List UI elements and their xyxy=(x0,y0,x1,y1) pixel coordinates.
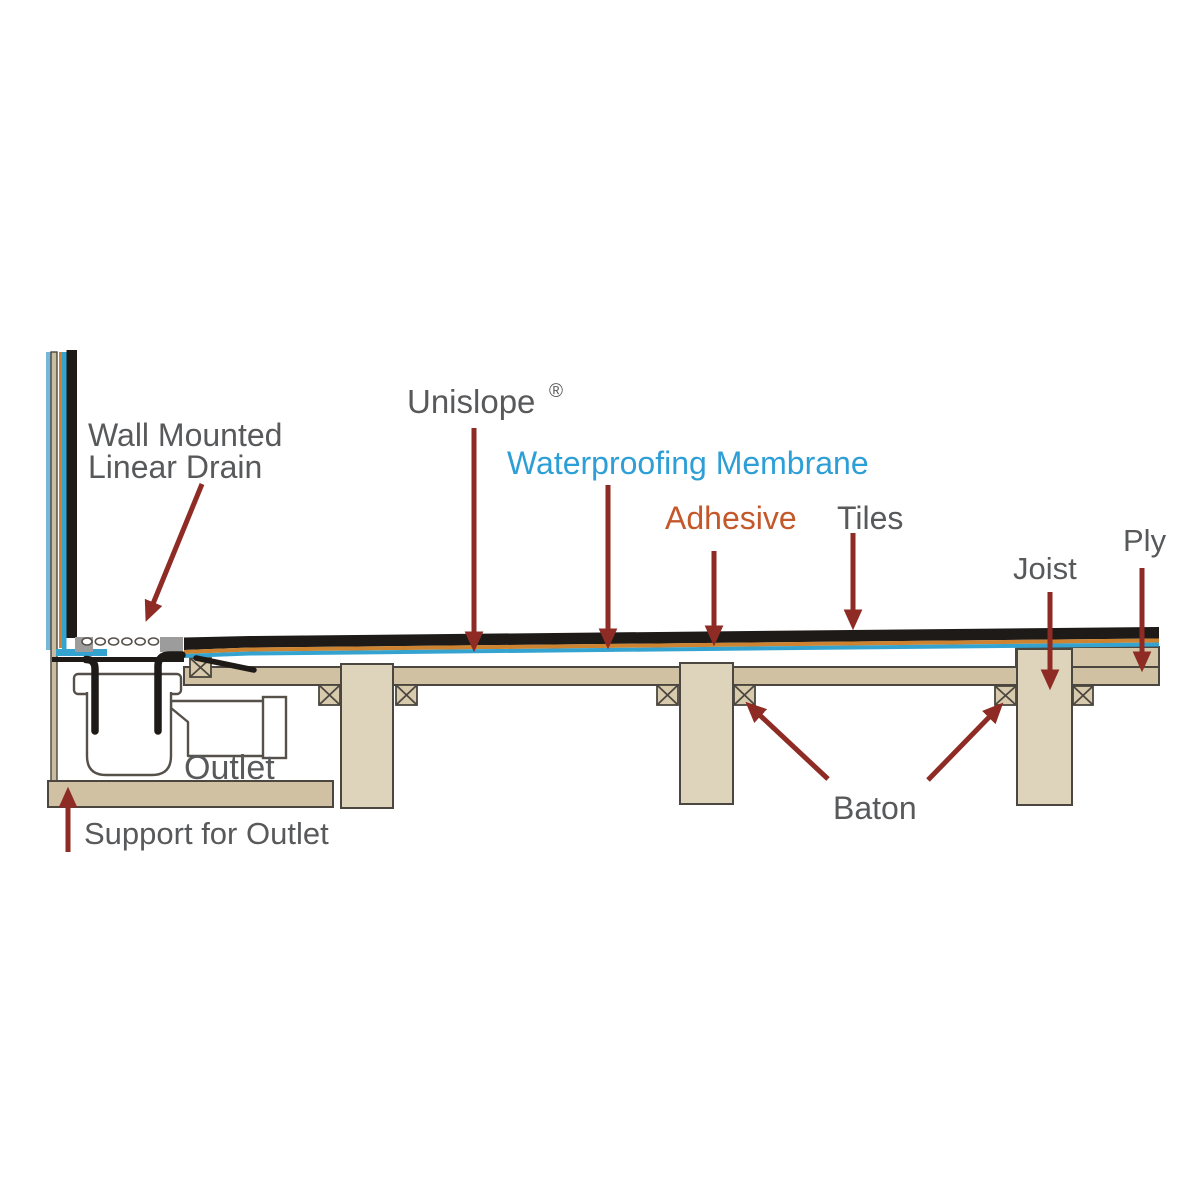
joist-middle xyxy=(680,663,733,804)
wall-board-layer xyxy=(51,352,57,783)
baton-box xyxy=(995,686,1016,705)
unislope-registered-mark: ® xyxy=(549,381,563,402)
baton-box xyxy=(734,685,755,705)
baton-box xyxy=(657,685,678,705)
outlet-label: Outlet xyxy=(184,749,275,787)
surface-layers xyxy=(184,627,1159,670)
joist-left xyxy=(341,664,393,808)
tiles-label: Tiles xyxy=(837,500,903,536)
outlet-pipe xyxy=(171,701,265,756)
baton-label: Baton xyxy=(833,790,917,826)
ply-label: Ply xyxy=(1123,523,1167,558)
wall-membrane-layer xyxy=(62,352,67,650)
drain-cross-section-diagram: Wall Mounted Linear Drain Unislope ® Wat… xyxy=(0,0,1200,1200)
drain-body-shoulder xyxy=(74,674,181,694)
diagram-page: Wall Mounted Linear Drain Unislope ® Wat… xyxy=(0,0,1200,1200)
baton-box xyxy=(1073,686,1093,705)
joist-label: Joist xyxy=(1013,551,1077,586)
drain-grate-slots xyxy=(82,638,159,645)
adhesive-label: Adhesive xyxy=(665,500,797,536)
baton-arrow-right xyxy=(928,707,999,780)
baton-box xyxy=(396,685,417,705)
unislope-label: Unislope xyxy=(407,383,535,420)
wall-tile-layer xyxy=(67,350,78,638)
baton-box xyxy=(319,685,340,705)
ply-layer xyxy=(184,667,1159,685)
support-label: Support for Outlet xyxy=(84,816,329,851)
baton-arrow-left xyxy=(750,706,828,779)
text-labels: Wall Mounted Linear Drain Unislope ® Wat… xyxy=(84,381,1167,851)
wall-outer-strip xyxy=(46,352,51,650)
drain-flange-right xyxy=(160,637,183,652)
wall-drain-label-line2: Linear Drain xyxy=(88,449,262,485)
joist-right xyxy=(1017,649,1072,805)
wall-drain-label-line1: Wall Mounted xyxy=(88,417,282,453)
wall-drain-arrow xyxy=(148,484,202,616)
wall-adhesive-layer xyxy=(59,352,62,648)
membrane-label: Waterproofing Membrane xyxy=(507,445,869,481)
